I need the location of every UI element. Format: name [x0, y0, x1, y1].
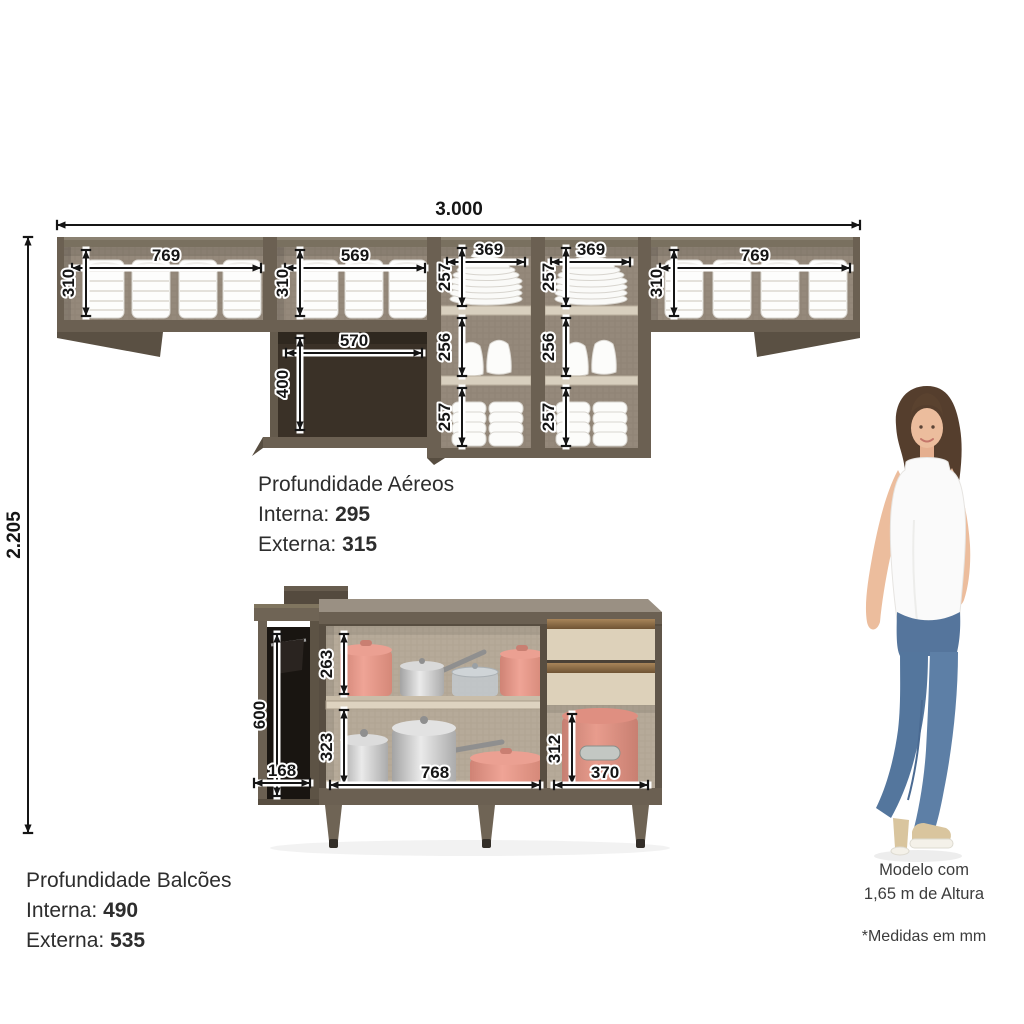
dim-total-width: 3.000: [57, 199, 860, 225]
depth-balcoes-externa: Externa: 535: [26, 926, 231, 956]
externa-value: 535: [110, 929, 145, 952]
depth-aereos-interna: Interna: 295: [258, 500, 454, 530]
depth-aereos-externa: Externa: 315: [258, 530, 454, 560]
dim-label: 769: [741, 246, 769, 265]
dim-label: 369: [475, 240, 503, 259]
spec-sheet: 3.000 2.205 769 310 569 310 570 400 369: [0, 0, 1024, 1024]
dim-label-total-width: 3.000: [435, 199, 483, 220]
bowl-stack: [452, 402, 486, 446]
model-photo: [866, 386, 970, 862]
dim-label: 310: [59, 269, 78, 297]
drawer-bottom: [547, 663, 655, 705]
model-caption-line2: 1,65 m de Altura: [826, 882, 1022, 906]
dim-label: 310: [647, 269, 666, 297]
dim-label: 263: [317, 650, 336, 678]
units-note: *Medidas em mm: [826, 928, 1022, 946]
cup: [487, 340, 512, 374]
model-caption-line1: Modelo com: [826, 858, 1022, 882]
depth-aereos-title: Profundidade Aéreos: [258, 470, 454, 500]
drawer-top: [547, 619, 655, 663]
externa-label: Externa:: [26, 929, 104, 952]
interna-label: Interna:: [258, 503, 329, 526]
dim-label: 257: [539, 263, 558, 291]
dim-label: 369: [577, 240, 605, 259]
cabinet-leg: [325, 805, 342, 848]
interna-value: 490: [103, 899, 138, 922]
dim-label: 257: [435, 263, 454, 291]
externa-value: 315: [342, 533, 377, 556]
externa-label: Externa:: [258, 533, 336, 556]
depth-balcoes-title: Profundidade Balcões: [26, 866, 231, 896]
shoes: [891, 818, 953, 855]
base-cabinet-diagram: [254, 586, 670, 856]
dim-label: 323: [317, 733, 336, 761]
interna-label: Interna:: [26, 899, 97, 922]
cabinet-leg: [632, 805, 649, 848]
dim-label: 769: [152, 246, 180, 265]
dim-label: 768: [421, 763, 449, 782]
depth-balcoes-note: Profundidade Balcões Interna: 490 Extern…: [26, 866, 231, 956]
cup: [592, 340, 617, 374]
dim-label: 168: [268, 761, 296, 780]
pot-pink-large: [500, 645, 544, 696]
bowl-stack: [593, 402, 627, 446]
bowl-stack: [489, 402, 523, 446]
dim-label: 400: [273, 370, 292, 398]
dim-label: 310: [273, 269, 292, 297]
dim-label: 256: [435, 333, 454, 361]
interna-value: 295: [335, 503, 370, 526]
pot-glass: [452, 663, 498, 696]
depth-balcoes-interna: Interna: 490: [26, 896, 231, 926]
dim-label: 600: [250, 701, 269, 729]
dim-label: 257: [435, 403, 454, 431]
jeans: [876, 612, 960, 840]
pot-pink: [340, 640, 392, 696]
bowl-stack: [556, 402, 590, 446]
dim-label-total-height: 2.205: [4, 511, 25, 559]
depth-aereos-note: Profundidade Aéreos Interna: 295 Externa…: [258, 470, 454, 560]
dim-label: 256: [539, 333, 558, 361]
dim-label: 569: [341, 246, 369, 265]
dim-label: 370: [591, 763, 619, 782]
dim-label: 570: [340, 331, 368, 350]
model-caption: Modelo com 1,65 m de Altura: [826, 858, 1022, 906]
dim-label: 257: [539, 403, 558, 431]
dim-label: 312: [545, 735, 564, 763]
dim-total-height: 2.205: [4, 237, 28, 833]
